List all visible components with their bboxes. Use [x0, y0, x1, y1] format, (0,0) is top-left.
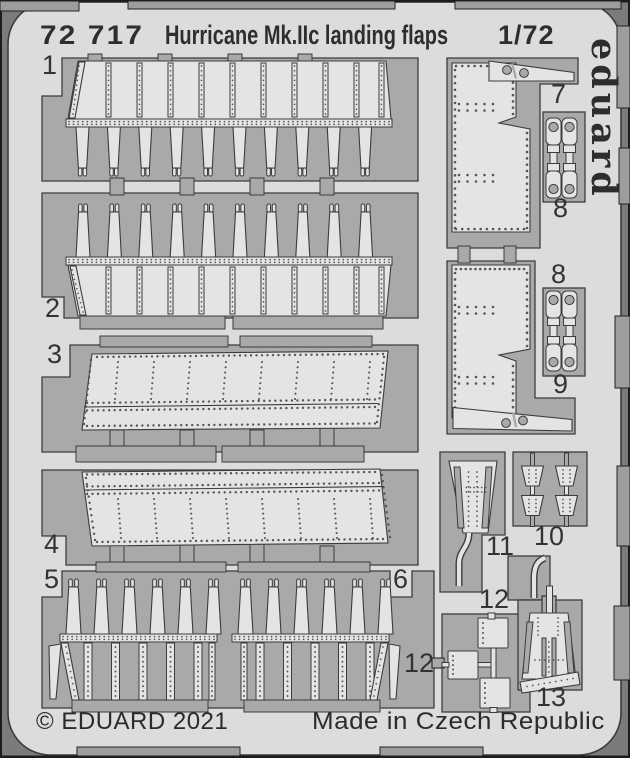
catalog-number: 72 717 — [40, 20, 144, 51]
copyright-text: © EDUARD 2021 — [36, 708, 228, 736]
part-label-7: 7 — [551, 81, 566, 108]
fret-artwork — [0, 0, 630, 758]
part-label-11: 10 — [534, 523, 564, 550]
part-label-15: 13 — [536, 684, 566, 711]
scale-text: 1/72 — [498, 20, 555, 51]
part-label-9: 8 — [551, 261, 566, 288]
part-label-13: 12 — [479, 586, 509, 613]
eduard-logo: eduard — [583, 38, 624, 200]
made-in-text: Made in Czech Republic — [312, 708, 605, 736]
part-label-10: 9 — [553, 371, 568, 398]
part-label-4: 4 — [44, 531, 59, 558]
part-label-8: 8 — [553, 195, 568, 222]
part-label-2: 2 — [45, 295, 60, 322]
part-label-12: 11 — [486, 533, 514, 560]
part-label-14: 12 — [404, 650, 434, 677]
part-label-1: 1 — [42, 52, 57, 79]
part-label-5: 5 — [44, 566, 59, 593]
photoetch-sheet-photo: 72 717 Hurricane Mk.IIc landing flaps 1/… — [0, 0, 630, 758]
product-title: Hurricane Mk.IIc landing flaps — [165, 20, 448, 51]
part-label-6: 6 — [393, 566, 408, 593]
part-label-3: 3 — [47, 341, 62, 368]
